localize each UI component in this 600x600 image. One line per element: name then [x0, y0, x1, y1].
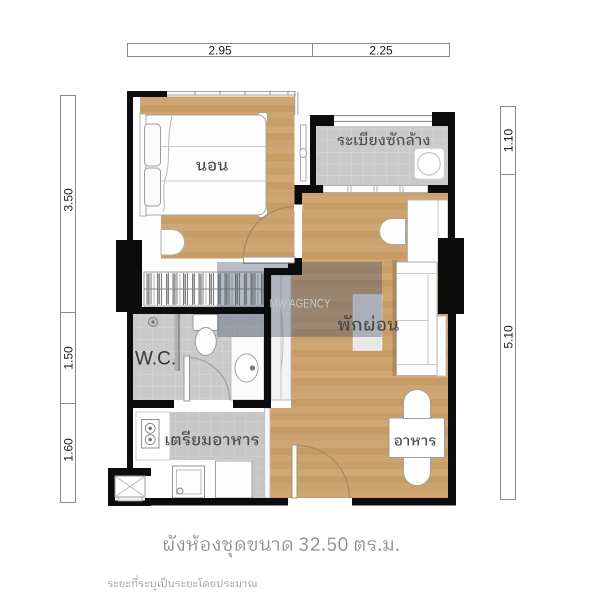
svg-text:5.10: 5.10 [502, 325, 516, 349]
svg-text:2.25: 2.25 [369, 44, 393, 58]
svg-text:2.95: 2.95 [208, 44, 232, 58]
svg-text:1.50: 1.50 [62, 346, 76, 370]
svg-text:3.50: 3.50 [62, 188, 76, 212]
svg-text:MW AGENCY: MW AGENCY [270, 297, 331, 311]
svg-text:1.60: 1.60 [62, 438, 76, 462]
svg-text:W.C.: W.C. [135, 349, 176, 370]
svg-text:1.10: 1.10 [502, 128, 516, 152]
